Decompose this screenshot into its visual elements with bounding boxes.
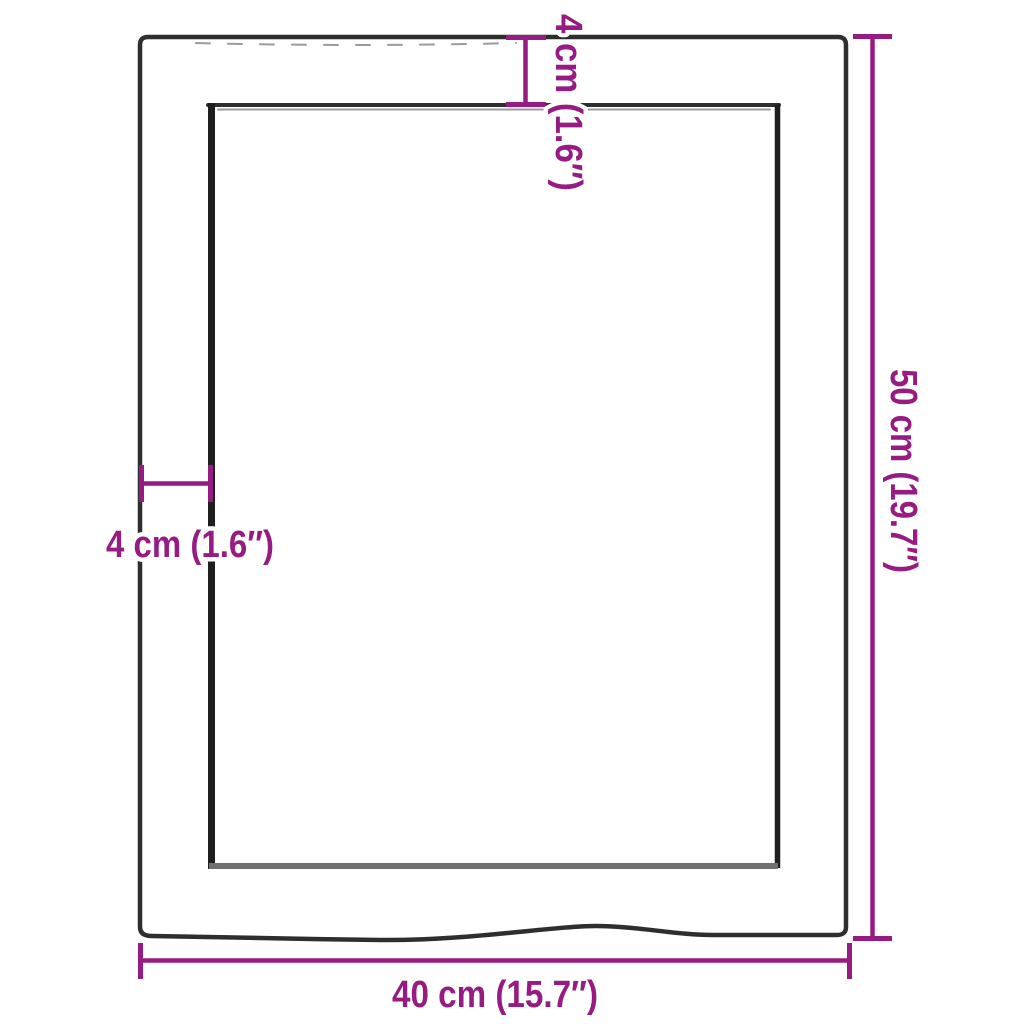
panel-inner-outline <box>208 103 779 869</box>
left-thickness-marker <box>141 465 211 502</box>
width-dimension-label: 40 cm (15.7″) <box>392 974 598 1016</box>
dimension-diagram: 40 cm (15.7″) 50 cm (19.7″) 4 cm (1.6″) … <box>0 0 1024 1024</box>
dimension-diagram-canvas: 40 cm (15.7″) 50 cm (19.7″) 4 cm (1.6″) … <box>0 0 1024 1024</box>
top-thickness-marker <box>506 37 546 105</box>
panel-outer-edge <box>140 37 846 940</box>
left-thickness-label: 4 cm (1.6″) <box>106 524 274 566</box>
height-dimension-label: 50 cm (19.7″) <box>882 369 924 573</box>
wood-grain-shading <box>196 43 516 45</box>
top-thickness-label: 4 cm (1.6″) <box>547 14 589 191</box>
panel-outer-outline <box>140 37 846 940</box>
